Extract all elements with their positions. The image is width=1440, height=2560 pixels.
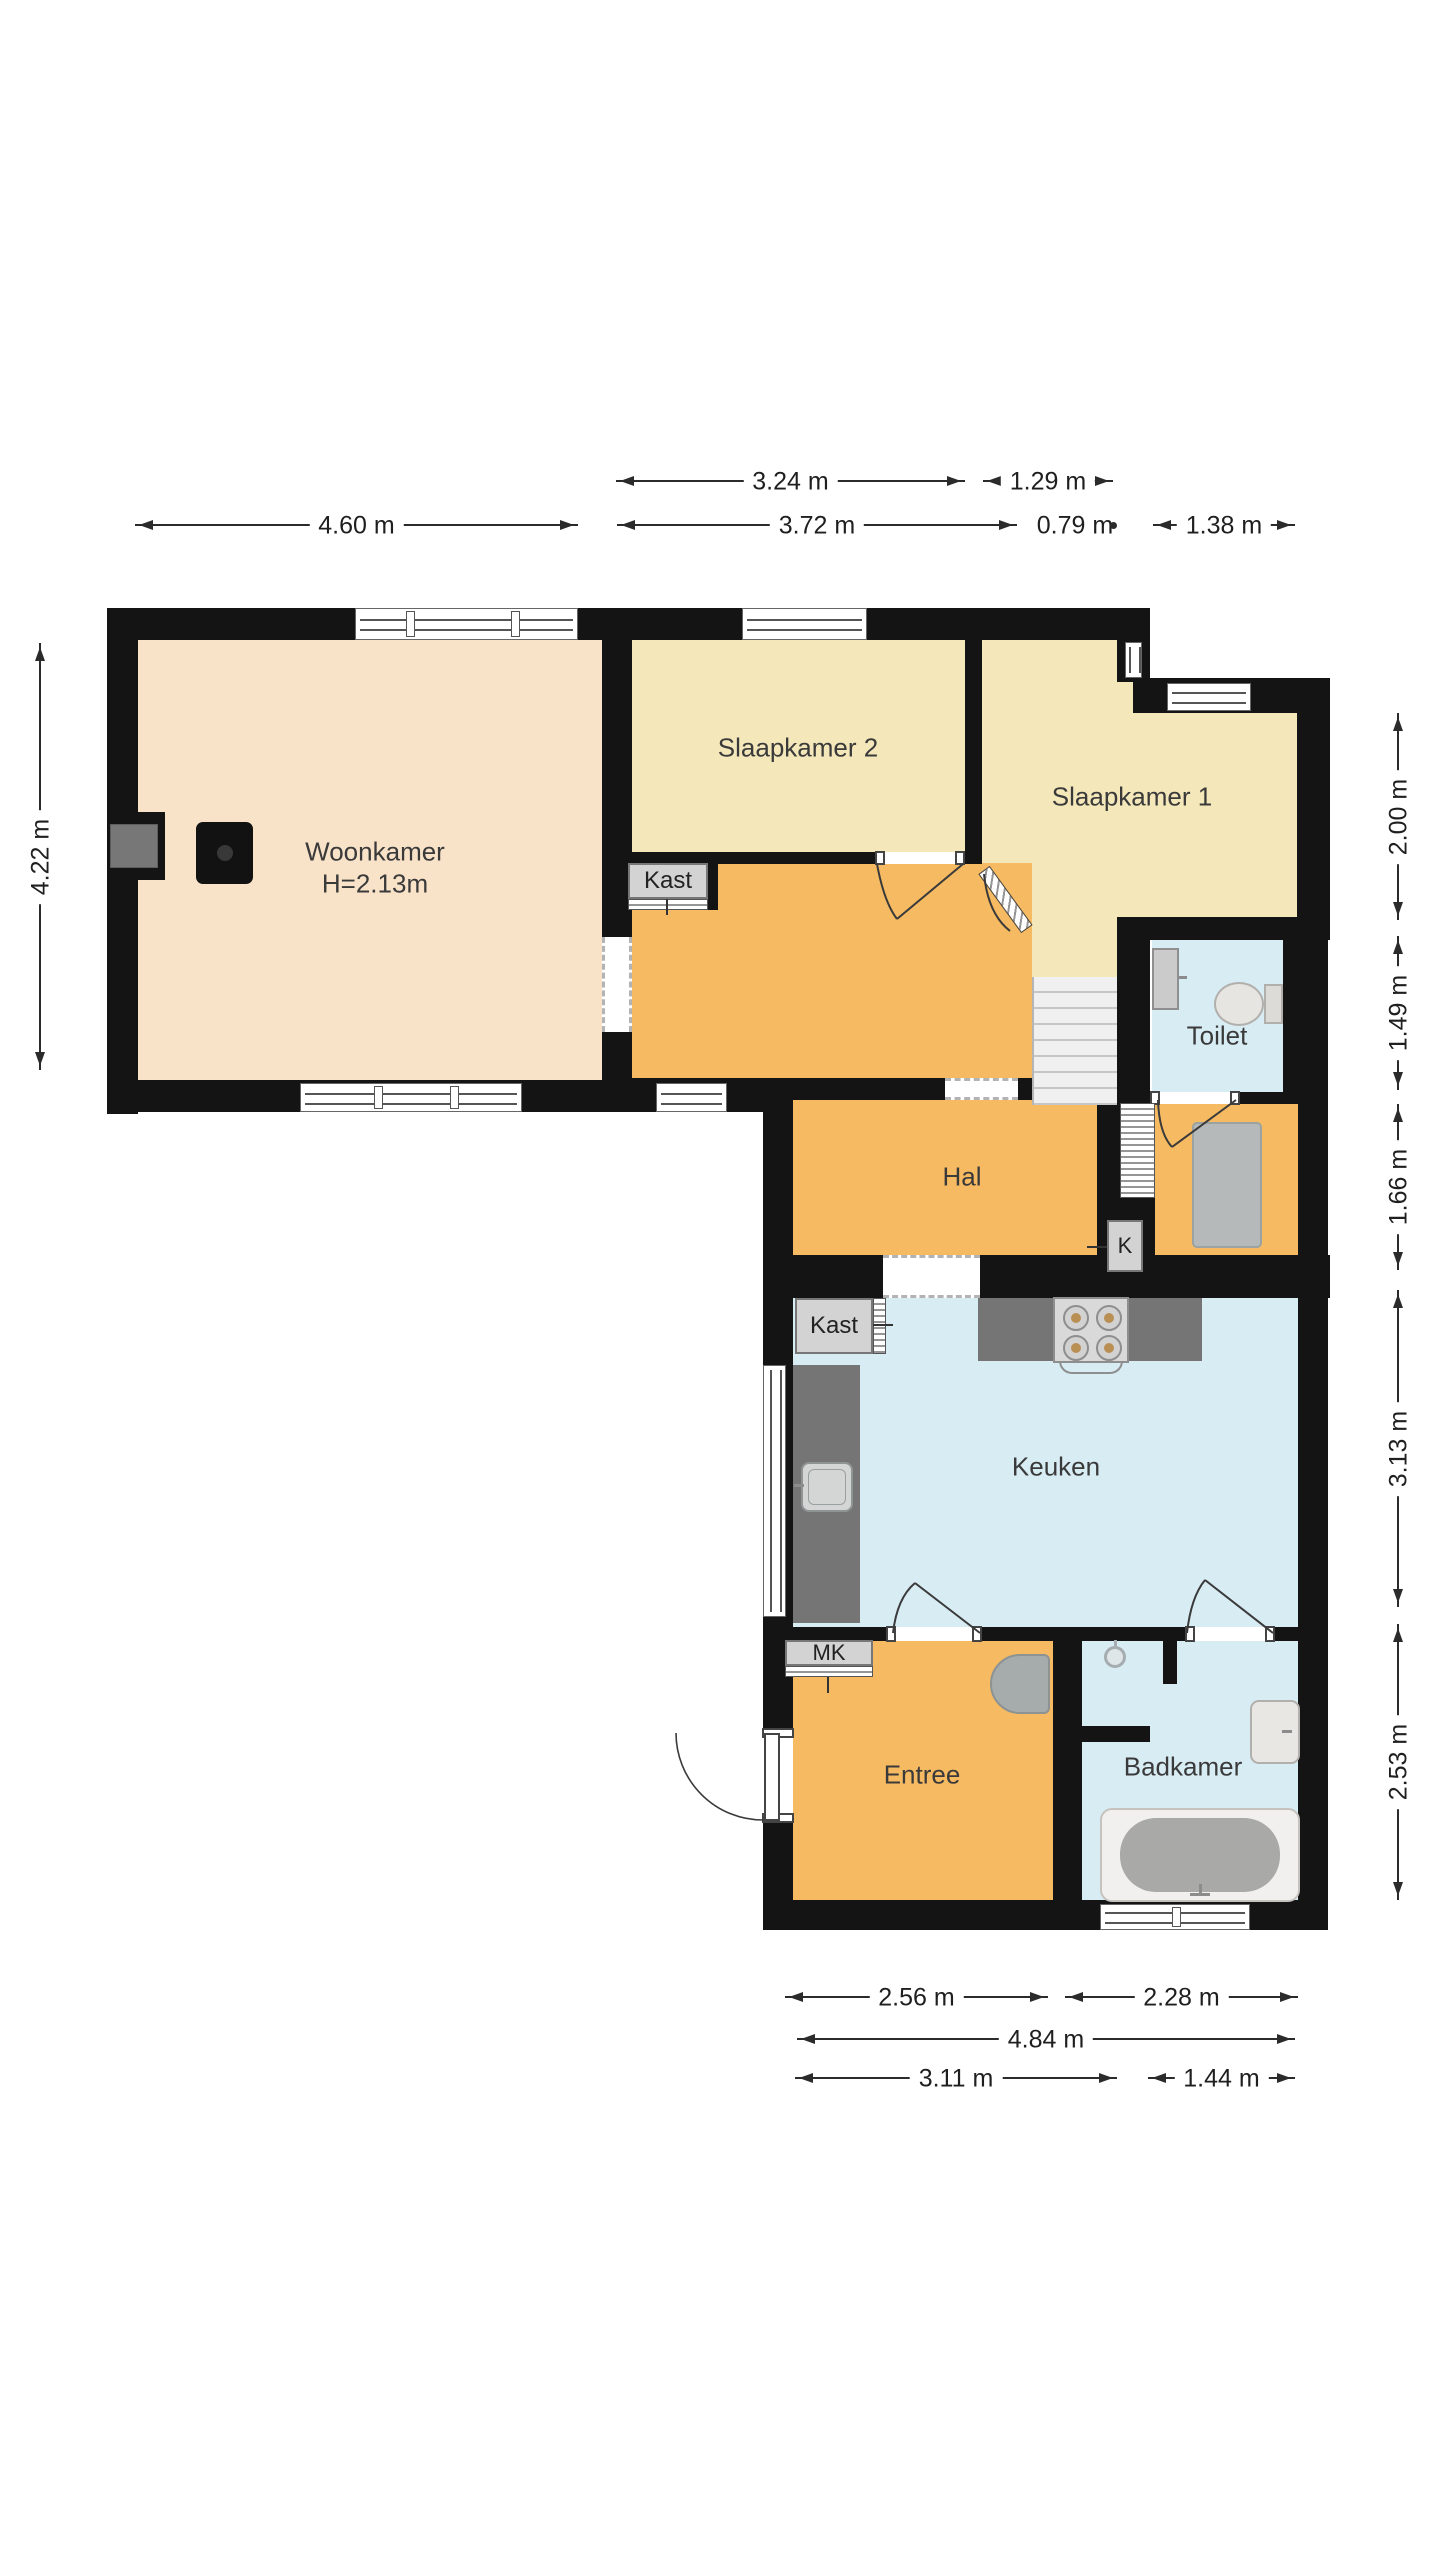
dimension-line: 3.72 m <box>617 524 1017 526</box>
room-label-toilet: Toilet <box>1187 1021 1248 1052</box>
shower-icon <box>1104 1646 1126 1668</box>
dimension-line: 1.49 m <box>1397 936 1399 1090</box>
window-mullion <box>1172 1907 1181 1927</box>
bath-tub-inner <box>1120 1818 1280 1892</box>
wall <box>1297 678 1330 940</box>
dimension-label: 4.22 m <box>27 809 56 903</box>
closet-label: Kast <box>810 1312 858 1340</box>
passage-hal-keuken <box>883 1255 980 1298</box>
window-icon <box>763 1365 786 1617</box>
mat-icon <box>1192 1122 1262 1248</box>
window-icon <box>355 608 578 640</box>
dimension-line: 4.84 m <box>797 2038 1295 2040</box>
window-icon <box>1167 683 1251 711</box>
wall <box>1053 1640 1082 1900</box>
closet-label: K <box>1118 1233 1133 1259</box>
room-label-slaapkamer1: Slaapkamer 1 <box>1052 782 1212 813</box>
window-icon <box>1125 642 1142 678</box>
room-height-label: H=2.13m <box>322 869 428 900</box>
sliding-door-meterkast <box>785 1666 873 1677</box>
closet-label: MK <box>813 1640 846 1666</box>
closet-kast-overloop: Kast <box>628 863 708 899</box>
pointer-line <box>1087 1246 1107 1248</box>
doorway-keuken-entree <box>888 1627 980 1641</box>
dimension-line: 4.22 m <box>39 643 41 1070</box>
wall <box>1298 1092 1328 1930</box>
washbasin-icon <box>1250 1700 1300 1764</box>
entree-fixture <box>990 1654 1050 1714</box>
floor-plan: Kast Kast MK K <box>0 0 1440 2560</box>
doorway-slaapkamer2 <box>877 852 963 864</box>
dimension-line: 3.11 m <box>795 2077 1117 2079</box>
dimension-line: 2.28 m <box>1065 1996 1298 1998</box>
burner-icon <box>1096 1305 1122 1331</box>
dimension-label: 3.24 m <box>743 468 837 497</box>
window-mullion <box>511 611 520 637</box>
faucet-icon <box>794 1484 804 1487</box>
closet-kast-hal: Kast <box>795 1298 873 1354</box>
burner-icon <box>1063 1305 1089 1331</box>
oven-handle-icon <box>1059 1361 1123 1374</box>
dimension-line: 1.44 m <box>1148 2077 1295 2079</box>
room-slaapkamer1 <box>1150 713 1298 918</box>
faucet-icon <box>1199 1884 1202 1896</box>
wall <box>1163 1640 1177 1684</box>
dimension-label: 1.49 m <box>1385 966 1414 1060</box>
window-icon <box>742 608 867 640</box>
closet-meterkast: MK <box>785 1640 873 1666</box>
dimension-label: 3.72 m <box>770 512 864 541</box>
passage-woonkamer-overloop <box>602 937 632 1032</box>
window-icon <box>1100 1904 1250 1930</box>
kitchen-sink-icon <box>801 1462 853 1512</box>
burner-icon <box>1096 1335 1122 1361</box>
stove-icon <box>1053 1297 1129 1363</box>
room-label-slaapkamer2: Slaapkamer 2 <box>718 733 878 764</box>
doorway-keuken-badkamer <box>1187 1627 1273 1641</box>
window-mullion <box>450 1086 459 1109</box>
dimension-line: 0.79 m <box>1035 524 1115 526</box>
dimension-line: 1.29 m <box>983 480 1113 482</box>
dimension-label: 3.11 m <box>910 2065 1003 2094</box>
dimension-line: 4.60 m <box>135 524 578 526</box>
dimension-label: 2.00 m <box>1385 769 1414 863</box>
dimension-line: 3.24 m <box>616 480 965 482</box>
dimension-label: 4.60 m <box>309 512 403 541</box>
room-label-hal: Hal <box>942 1162 981 1193</box>
dimension-label: 4.84 m <box>999 2026 1093 2055</box>
wall <box>1283 935 1328 1092</box>
room-label-entree: Entree <box>884 1760 961 1791</box>
window-icon <box>300 1083 522 1112</box>
closet-k: K <box>1107 1220 1143 1272</box>
faucet-icon <box>1282 1730 1292 1733</box>
dimension-label: 1.44 m <box>1174 2065 1268 2094</box>
dimension-label: 2.53 m <box>1385 1715 1414 1809</box>
sliding-door-hal-vestibule <box>1120 1103 1155 1198</box>
dimension-line: 2.56 m <box>785 1996 1048 1998</box>
doorway-toilet <box>1152 1092 1238 1104</box>
dimension-label: 1.29 m <box>1001 468 1095 497</box>
chimney-icon <box>196 822 253 884</box>
dimension-label: 0.79 m <box>1028 512 1122 541</box>
closet-label: Kast <box>644 867 692 895</box>
dimension-line: 1.66 m <box>1397 1104 1399 1270</box>
sliding-door-kast <box>873 1298 886 1354</box>
passage-overloop-hal <box>945 1078 1018 1100</box>
window-icon <box>656 1083 727 1112</box>
pointer-line <box>666 899 668 915</box>
stairs-icon <box>1032 977 1117 1105</box>
dimension-line: 2.00 m <box>1397 713 1399 920</box>
sliding-door-kast <box>628 899 708 910</box>
dimension-label: 2.56 m <box>869 1984 963 2013</box>
window-mullion <box>406 611 415 637</box>
room-label-badkamer: Badkamer <box>1124 1752 1243 1783</box>
room-label-woonkamer: Woonkamer <box>305 837 445 868</box>
dimension-label: 2.28 m <box>1134 1984 1228 2013</box>
dimension-line: 3.13 m <box>1397 1290 1399 1607</box>
dimension-label: 1.66 m <box>1385 1140 1414 1234</box>
room-label-keuken: Keuken <box>1012 1452 1100 1483</box>
dimension-line: 1.38 m <box>1153 524 1295 526</box>
wall <box>1117 935 1150 1105</box>
burner-icon <box>1063 1335 1089 1361</box>
pointer-line <box>873 1324 893 1326</box>
wall <box>965 640 982 864</box>
dimension-line: 2.53 m <box>1397 1624 1399 1900</box>
toilet-cistern-icon <box>1264 984 1283 1024</box>
toilet-icon <box>1214 982 1264 1026</box>
dimension-label: 1.38 m <box>1177 512 1271 541</box>
front-door-leaf <box>764 1733 780 1821</box>
window-mullion <box>374 1086 383 1109</box>
dimension-label: 3.13 m <box>1385 1401 1414 1495</box>
faucet-icon <box>1179 976 1187 979</box>
pointer-line <box>827 1677 829 1693</box>
wall <box>1082 1726 1150 1742</box>
wall <box>107 608 1147 640</box>
wall-niche <box>110 824 158 868</box>
toilet-sink-icon <box>1152 948 1179 1010</box>
